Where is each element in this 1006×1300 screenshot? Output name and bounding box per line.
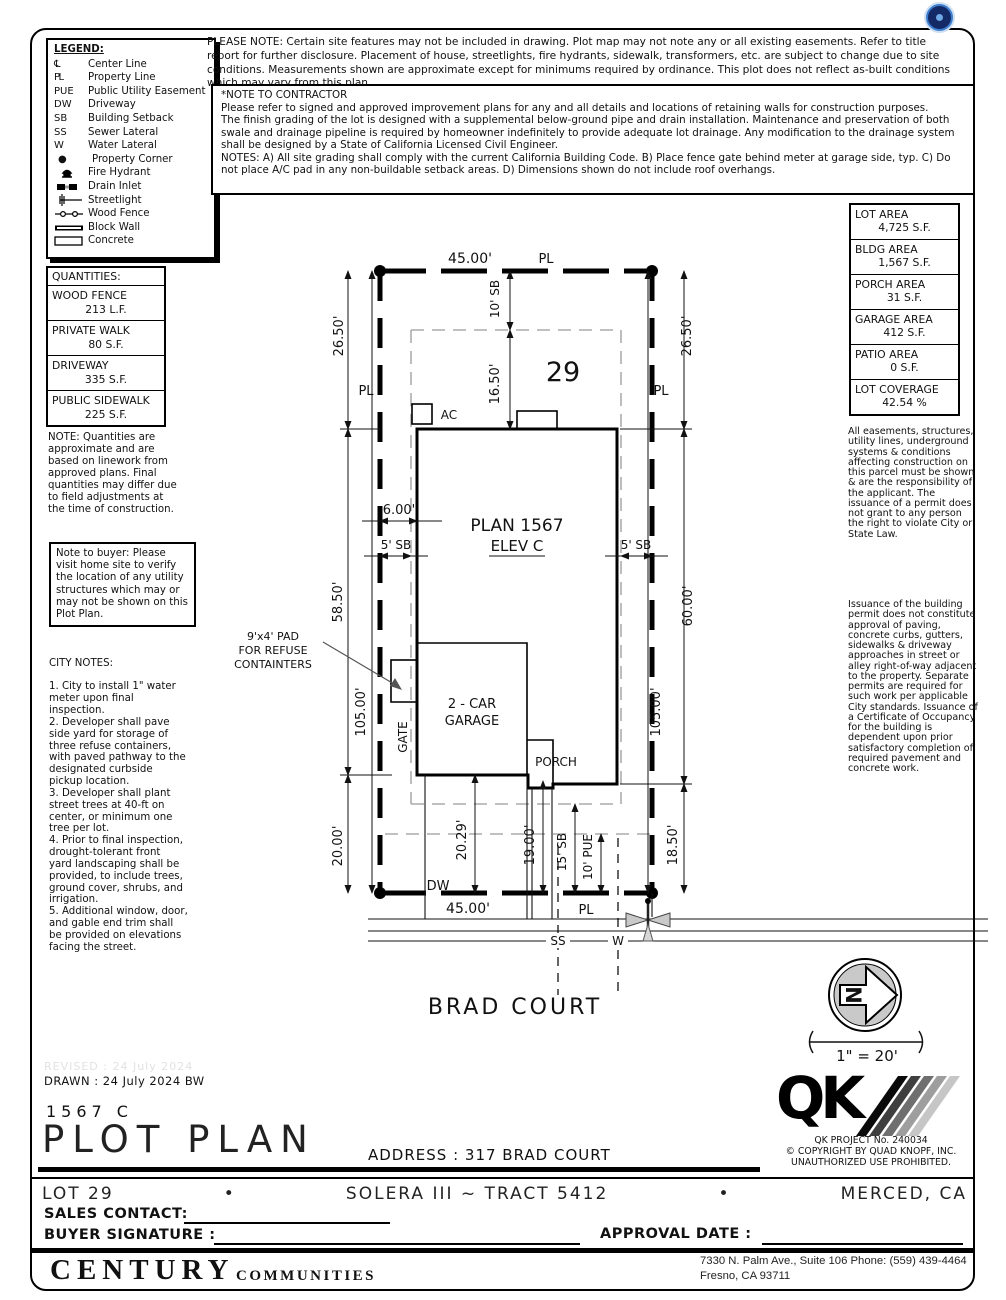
office-address-line1: 7330 N. Palm Ave., Suite 106 Phone: (559…	[700, 1254, 967, 1269]
dim-house-depth-left: 58.50'	[331, 582, 346, 623]
concrete-icon	[54, 235, 88, 247]
approval-date-field	[762, 1242, 963, 1245]
refuse-pad-note: 9'x4' PAD FOR REFUSE CONTAINTERS	[223, 630, 323, 671]
dim-rear-right: 26.50'	[680, 316, 695, 357]
pue-abbrev: PUE	[54, 85, 88, 99]
century-brand: CENTURY	[50, 1254, 234, 1287]
legend-label: Driveway	[88, 98, 136, 112]
dim-rear-setback: 10' SB	[488, 280, 502, 318]
garage-label-1: 2 - CAR	[448, 697, 496, 712]
qty-label: PUBLIC SIDEWALK	[52, 394, 160, 407]
contractor-note-box: *NOTE TO CONTRACTOR Please refer to sign…	[211, 84, 975, 195]
dim-house-depth-right: 60.00'	[681, 586, 696, 627]
city-notes-title: CITY NOTES:	[49, 658, 191, 670]
window-bump	[517, 411, 557, 429]
dim-side-gap: 6.00'	[383, 503, 416, 518]
block-wall-icon	[54, 222, 88, 234]
qk-project-number: QK PROJECT No. 240034	[770, 1136, 972, 1146]
area-table: LOT AREA4,725 S.F. BLDG AREA1,567 S.F. P…	[849, 203, 960, 416]
legend-label: Streetlight	[88, 194, 142, 208]
pl-label-top: PL	[538, 252, 554, 267]
legend-label: Sewer Lateral	[88, 126, 158, 140]
permit-note: Issuance of the building permit does not…	[848, 600, 979, 774]
city-notes-body: 1. City to install 1" water meter upon f…	[49, 681, 191, 953]
qk-copyright-2: UNAUTHORIZED USE PROHIBITED.	[770, 1158, 972, 1168]
address-line: ADDRESS : 317 BRAD COURT	[368, 1146, 611, 1164]
area-value: 412 S.F.	[855, 326, 954, 339]
quantities-note: NOTE: Quantities are approximate and are…	[48, 432, 178, 516]
ac-pad	[412, 404, 432, 424]
dim-bottom-width: 45.00'	[446, 901, 490, 917]
w-abbrev: W	[54, 139, 88, 153]
qty-value: 80 S.F.	[52, 338, 160, 351]
contractor-note-title: *NOTE TO CONTRACTOR	[221, 89, 965, 102]
sales-contact-label: SALES CONTACT:	[44, 1206, 188, 1222]
qty-label: WOOD FENCE	[52, 289, 160, 302]
bullet-separator: •	[224, 1184, 236, 1204]
qty-value: 225 S.F.	[52, 408, 160, 421]
area-value: 42.54 %	[855, 396, 954, 409]
quantities-table: QUANTITIES: WOOD FENCE213 L.F. PRIVATE W…	[46, 266, 166, 427]
pl-label-left: PL	[358, 384, 374, 399]
divider-bar	[38, 1167, 760, 1172]
ac-label: AC	[441, 408, 457, 422]
sheet-title: PLOT PLAN	[42, 1118, 316, 1161]
city-notes: CITY NOTES: 1. City to install 1" water …	[49, 646, 191, 965]
approval-date-label: APPROVAL DATE :	[600, 1226, 752, 1242]
table-row: LOT AREA4,725 S.F.	[851, 205, 958, 239]
legend-label: Property Corner	[92, 153, 173, 167]
office-address: 7330 N. Palm Ave., Suite 106 Phone: (559…	[700, 1254, 967, 1285]
plot-plan-sheet: 45.00' PL 26.50' 26.50' 10' SB 16.50' 29…	[0, 0, 1006, 1300]
lot-tract-row: LOT 29 • SOLERA III ~ TRACT 5412 • MERCE…	[42, 1184, 967, 1204]
gate-label: GATE	[396, 721, 410, 753]
qk-copyright: © COPYRIGHT BY QUAD KNOPF, INC.	[770, 1147, 972, 1157]
legend-label: Property Line	[88, 71, 156, 85]
floating-widget-dot	[936, 14, 943, 21]
qk-logo: QK	[776, 1064, 860, 1132]
dim-lot-depth-right: 105.00'	[649, 687, 664, 736]
qty-value: 335 S.F.	[52, 373, 160, 386]
drawn-date: DRAWN : 24 July 2024 BW	[44, 1074, 205, 1088]
streetlight-icon	[626, 898, 670, 941]
scale-bar: 1" = 20'	[810, 1031, 923, 1065]
divider-line	[32, 1177, 973, 1179]
table-row: PORCH AREA31 S.F.	[851, 274, 958, 309]
dim-lot-depth-left: 105.00'	[354, 687, 369, 736]
legend-label: Drain Inlet	[88, 180, 141, 194]
house-footprint	[391, 404, 617, 788]
legend-title: LEGEND:	[54, 43, 208, 57]
floating-widget-inner	[926, 4, 953, 31]
area-label: PORCH AREA	[855, 278, 954, 291]
legend-label: Block Wall	[88, 221, 140, 235]
pl-label-bottom: PL	[578, 903, 594, 918]
dim-porch-to-pl: 19.00'	[523, 825, 538, 866]
refuse-leader	[323, 642, 402, 690]
table-row: WOOD FENCE213 L.F.	[48, 285, 164, 320]
wood-fence-icon	[54, 208, 88, 220]
ss-lateral-label: SS	[550, 934, 565, 948]
property-line-icon: PL	[54, 71, 88, 85]
dim-pue: 10' PUE	[581, 834, 595, 880]
legend-box: LEGEND: ℄Center Line PLProperty Line PUE…	[46, 38, 216, 259]
ss-abbrev: SS	[54, 126, 88, 140]
dim-front-right: 18.50'	[666, 825, 681, 866]
contractor-note-line: The finish grading of the lot is designe…	[221, 114, 965, 152]
street-name: BRAD COURT	[428, 995, 602, 1020]
table-row: LOT COVERAGE42.54 %	[851, 379, 958, 414]
plan-elev: ELEV C	[491, 537, 544, 555]
qk-logo-stripes	[856, 1076, 972, 1136]
legend-label: Fire Hydrant	[88, 166, 150, 180]
table-row: PATIO AREA0 S.F.	[851, 344, 958, 379]
area-label: LOT COVERAGE	[855, 383, 954, 396]
floating-widget-icon[interactable]	[924, 2, 955, 33]
dim-rear-to-house: 16.50'	[488, 364, 503, 405]
porch-label: PORCH	[535, 755, 577, 769]
legend-label: Concrete	[88, 234, 134, 248]
easement-note: All easements, structures, utility lines…	[848, 427, 976, 540]
quantities-title: QUANTITIES:	[48, 268, 164, 285]
dim-front-left: 20.00'	[331, 826, 346, 867]
legend-label: Water Lateral	[88, 139, 157, 153]
contractor-note-line: NOTES: A) All site grading shall comply …	[221, 152, 965, 177]
north-letter: N	[841, 986, 865, 1004]
tract-label: SOLERA III ~ TRACT 5412	[346, 1184, 608, 1204]
dw-label: DW	[427, 879, 450, 894]
table-row: PUBLIC SIDEWALK225 S.F.	[48, 390, 164, 425]
revised-date: REVISED : 24 July 2024	[44, 1060, 193, 1073]
table-row: GARAGE AREA412 S.F.	[851, 309, 958, 344]
garage-label-2: GARAGE	[445, 714, 499, 729]
north-arrow: N	[829, 959, 901, 1031]
dim-driveway: 20.29'	[455, 820, 470, 861]
legend-label: Building Setback	[88, 112, 174, 126]
area-label: BLDG AREA	[855, 243, 954, 256]
table-row: PRIVATE WALK80 S.F.	[48, 320, 164, 355]
centerline-icon: ℄	[54, 58, 88, 72]
dim-top-width: 45.00'	[448, 251, 492, 267]
scale-label: 1" = 20'	[836, 1047, 898, 1065]
streetlight-legend-icon	[54, 194, 88, 206]
drain-inlet-icon	[54, 181, 88, 193]
lot-label: LOT 29	[42, 1184, 114, 1204]
legend-label: Public Utility Easement	[88, 85, 206, 99]
dw-abbrev: DW	[54, 98, 88, 112]
area-label: GARAGE AREA	[855, 313, 954, 326]
qty-label: PRIVATE WALK	[52, 324, 160, 337]
dim-front-setback: 15' SB	[555, 833, 569, 871]
dim-sb-left: 5' SB	[381, 538, 412, 552]
plan-name: PLAN 1567	[470, 516, 563, 536]
legend-label: Wood Fence	[88, 207, 150, 221]
please-note: PLEASE NOTE: Certain site features may n…	[207, 36, 959, 91]
fire-hydrant-icon	[54, 167, 88, 179]
contractor-note-line: Please refer to signed and approved impr…	[221, 102, 965, 115]
property-corner-icon: ●	[54, 153, 92, 167]
qty-label: DRIVEWAY	[52, 359, 160, 372]
area-label: LOT AREA	[855, 208, 954, 221]
qty-value: 213 L.F.	[52, 303, 160, 316]
w-lateral-label: W	[612, 934, 624, 948]
lot-number: 29	[546, 357, 580, 388]
pl-label-right: PL	[653, 384, 669, 399]
qk-logo-block: QK QK PROJECT No. 240034 © COPYRIGHT BY …	[770, 1076, 972, 1168]
buyer-note-box: Note to buyer: Please visit home site to…	[49, 542, 196, 627]
legend-label: Center Line	[88, 58, 147, 72]
table-row: BLDG AREA1,567 S.F.	[851, 239, 958, 274]
footer-divider-bar	[32, 1248, 973, 1253]
table-row: DRIVEWAY335 S.F.	[48, 355, 164, 390]
city-label: MERCED, CA	[841, 1184, 967, 1204]
area-label: PATIO AREA	[855, 348, 954, 361]
sales-contact-field	[184, 1221, 390, 1224]
buyer-signature-field	[214, 1242, 580, 1245]
area-value: 0 S.F.	[855, 361, 954, 374]
buyer-signature-label: BUYER SIGNATURE :	[44, 1227, 216, 1243]
communities-brand: COMMUNITIES	[236, 1268, 376, 1285]
dim-rear-left: 26.50'	[332, 316, 347, 357]
bullet-separator: •	[718, 1184, 730, 1204]
area-value: 4,725 S.F.	[855, 221, 954, 234]
dim-sb-right: 5' SB	[621, 538, 652, 552]
area-value: 1,567 S.F.	[855, 256, 954, 269]
area-value: 31 S.F.	[855, 291, 954, 304]
sb-abbrev: SB	[54, 112, 88, 126]
office-address-line2: Fresno, CA 93711	[700, 1269, 967, 1284]
